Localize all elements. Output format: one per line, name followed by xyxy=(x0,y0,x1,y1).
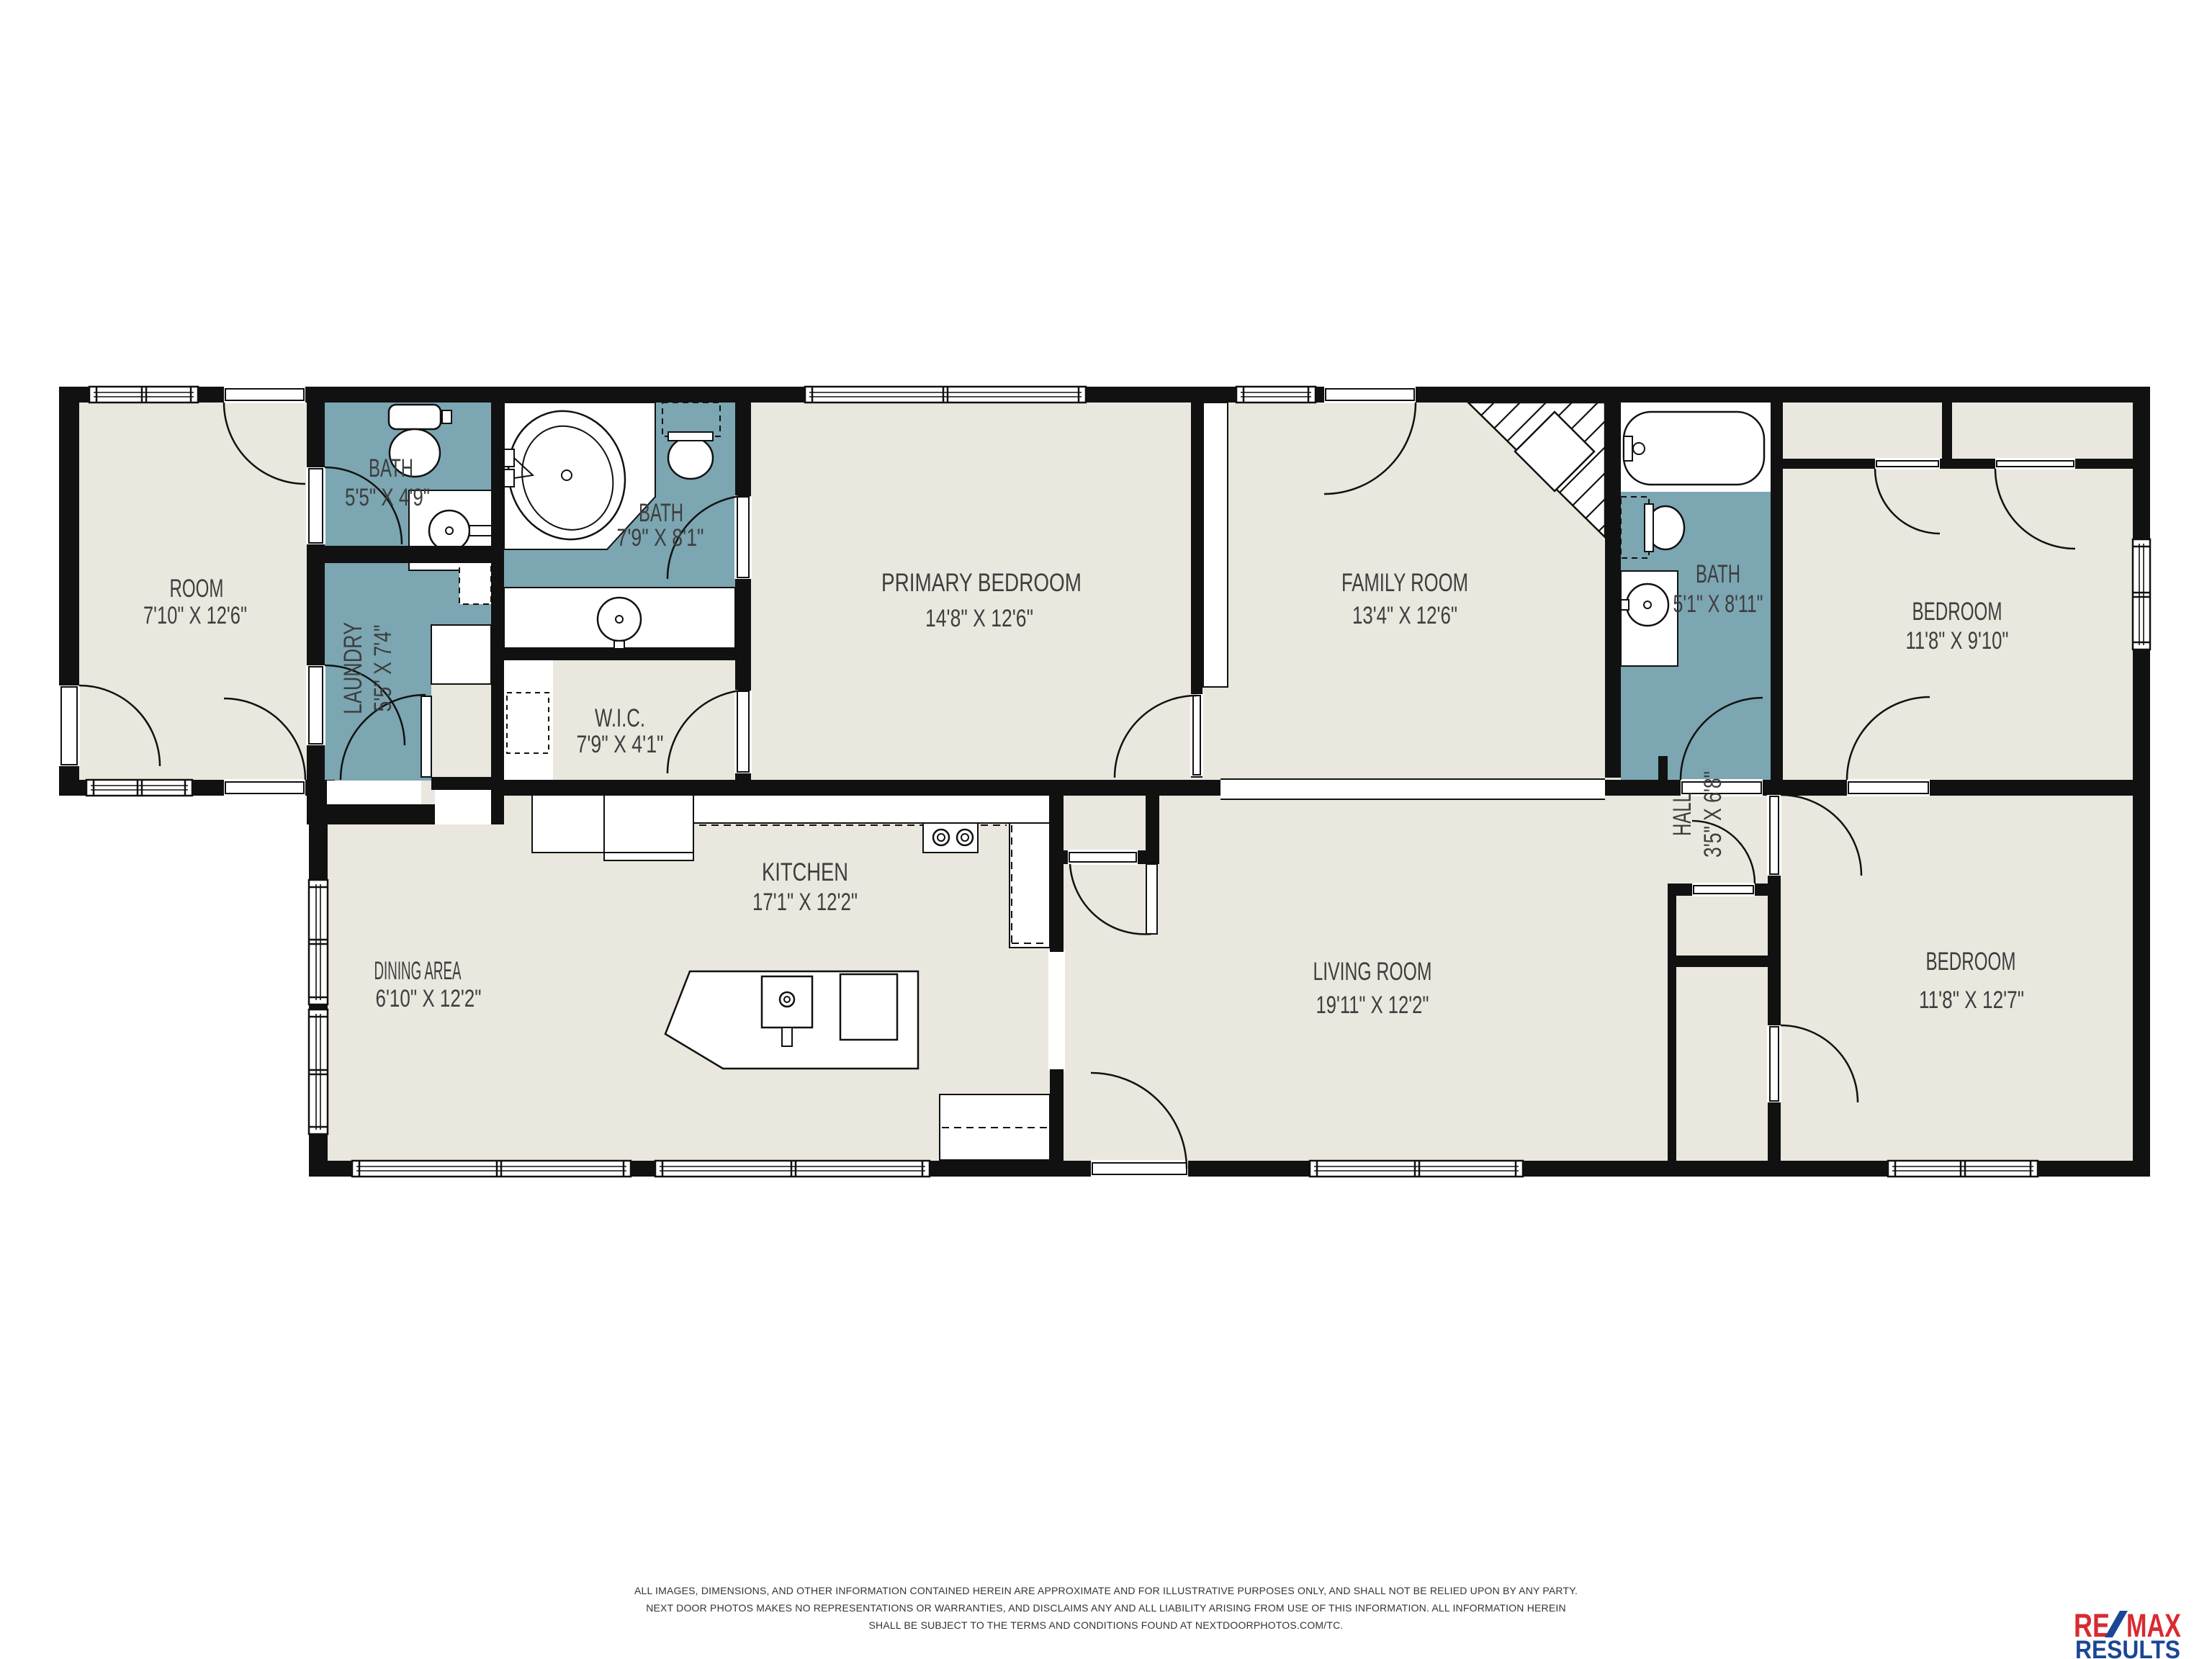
svg-text:17'1" X 12'2": 17'1" X 12'2" xyxy=(752,889,858,916)
svg-text:7'10" X 12'6": 7'10" X 12'6" xyxy=(143,602,247,629)
svg-text:3'5" X 6'8": 3'5" X 6'8" xyxy=(1699,771,1727,858)
svg-text:14'8" X 12'6": 14'8" X 12'6" xyxy=(925,605,1033,632)
svg-text:BEDROOM: BEDROOM xyxy=(1912,598,2002,626)
svg-text:ALL IMAGES, DIMENSIONS, AND OT: ALL IMAGES, DIMENSIONS, AND OTHER INFORM… xyxy=(634,1585,1578,1596)
svg-text:FAMILY ROOM: FAMILY ROOM xyxy=(1341,569,1468,597)
svg-text:PRIMARY BEDROOM: PRIMARY BEDROOM xyxy=(881,569,1082,597)
svg-text:W.I.C.: W.I.C. xyxy=(595,704,645,732)
svg-text:RESULTS: RESULTS xyxy=(2075,1636,2180,1659)
svg-text:BATH: BATH xyxy=(639,499,683,527)
svg-text:LIVING ROOM: LIVING ROOM xyxy=(1313,958,1432,986)
svg-text:5'5" X 7'4": 5'5" X 7'4" xyxy=(369,625,397,712)
svg-text:7'9" X 8'1": 7'9" X 8'1" xyxy=(617,524,704,552)
svg-text:DINING AREA: DINING AREA xyxy=(374,957,462,985)
svg-text:BATH: BATH xyxy=(369,454,413,482)
svg-text:KITCHEN: KITCHEN xyxy=(762,858,848,886)
svg-text:19'11" X 12'2": 19'11" X 12'2" xyxy=(1316,992,1429,1019)
svg-text:6'10" X 12'2": 6'10" X 12'2" xyxy=(376,985,482,1012)
svg-text:SHALL BE SUBJECT TO THE TERMS: SHALL BE SUBJECT TO THE TERMS AND CONDIT… xyxy=(868,1619,1343,1631)
svg-text:11'8" X 9'10": 11'8" X 9'10" xyxy=(1906,627,2009,655)
svg-text:13'4" X 12'6": 13'4" X 12'6" xyxy=(1352,602,1457,629)
svg-text:NEXT DOOR PHOTOS MAKES NO REPR: NEXT DOOR PHOTOS MAKES NO REPRESENTATION… xyxy=(646,1602,1566,1614)
svg-text:11'8" X 12'7": 11'8" X 12'7" xyxy=(1919,986,2024,1014)
svg-text:7'9" X 4'1": 7'9" X 4'1" xyxy=(577,731,664,758)
svg-text:LAUNDRY: LAUNDRY xyxy=(339,622,367,714)
svg-text:BEDROOM: BEDROOM xyxy=(1926,948,2016,976)
svg-text:ROOM: ROOM xyxy=(170,575,224,603)
svg-text:5'1" X 8'11": 5'1" X 8'11" xyxy=(1673,590,1763,618)
svg-text:BATH: BATH xyxy=(1696,560,1740,588)
svg-text:HALL: HALL xyxy=(1668,793,1696,836)
svg-text:5'5" X 4'9": 5'5" X 4'9" xyxy=(345,484,430,511)
